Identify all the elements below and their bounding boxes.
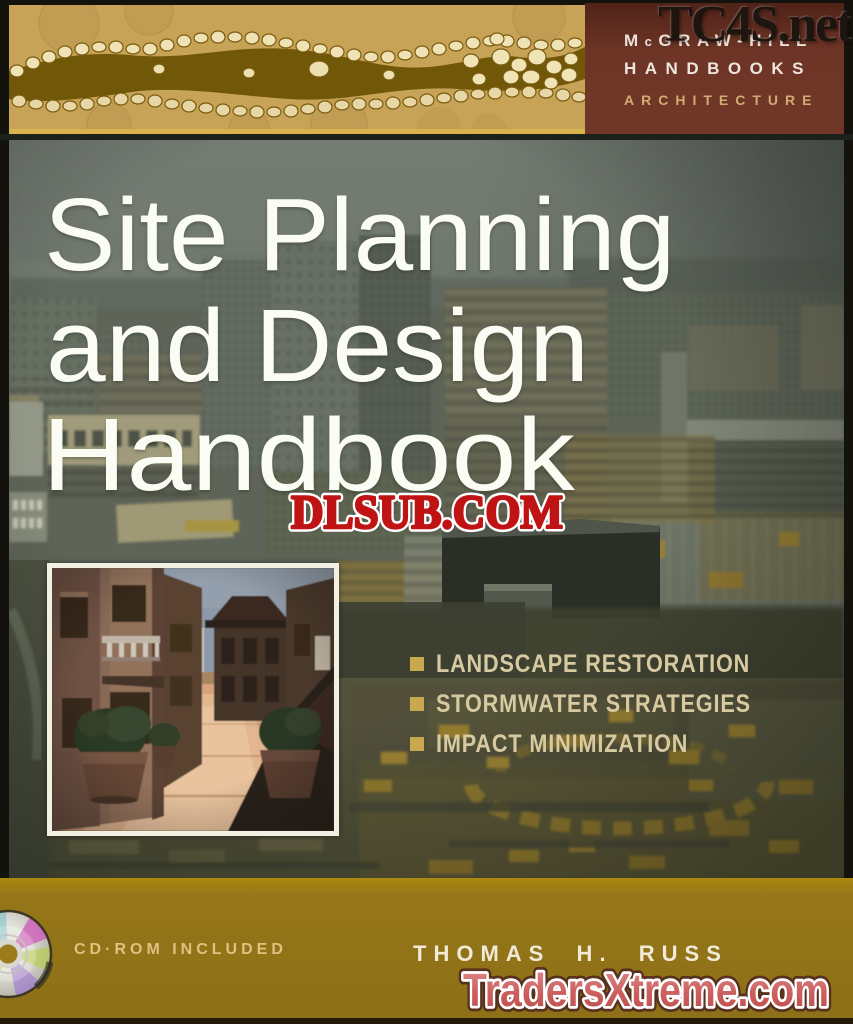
svg-text:TradersXtreme.com: TradersXtreme.com [463, 964, 829, 1016]
svg-text:DLSUB.COM: DLSUB.COM [291, 486, 563, 539]
